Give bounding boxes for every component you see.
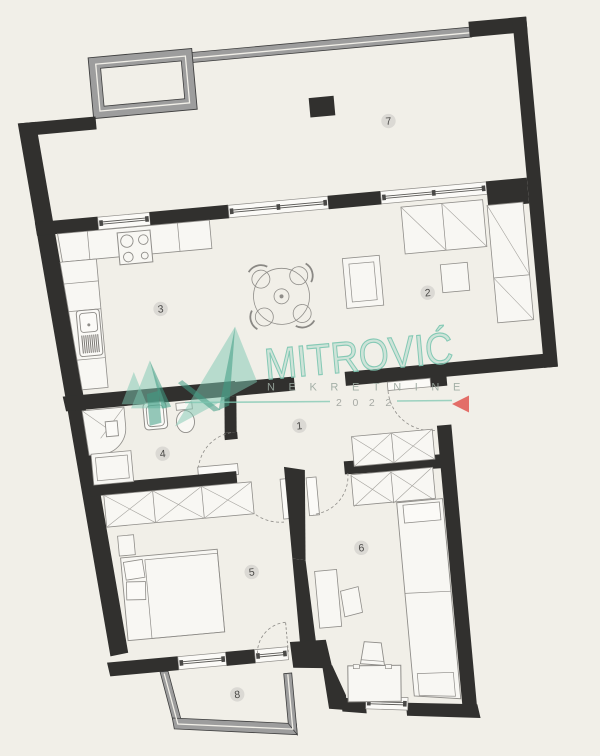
- svg-text:NEKRETNINE: NEKRETNINE: [267, 382, 474, 394]
- svg-text:2022: 2022: [336, 397, 402, 409]
